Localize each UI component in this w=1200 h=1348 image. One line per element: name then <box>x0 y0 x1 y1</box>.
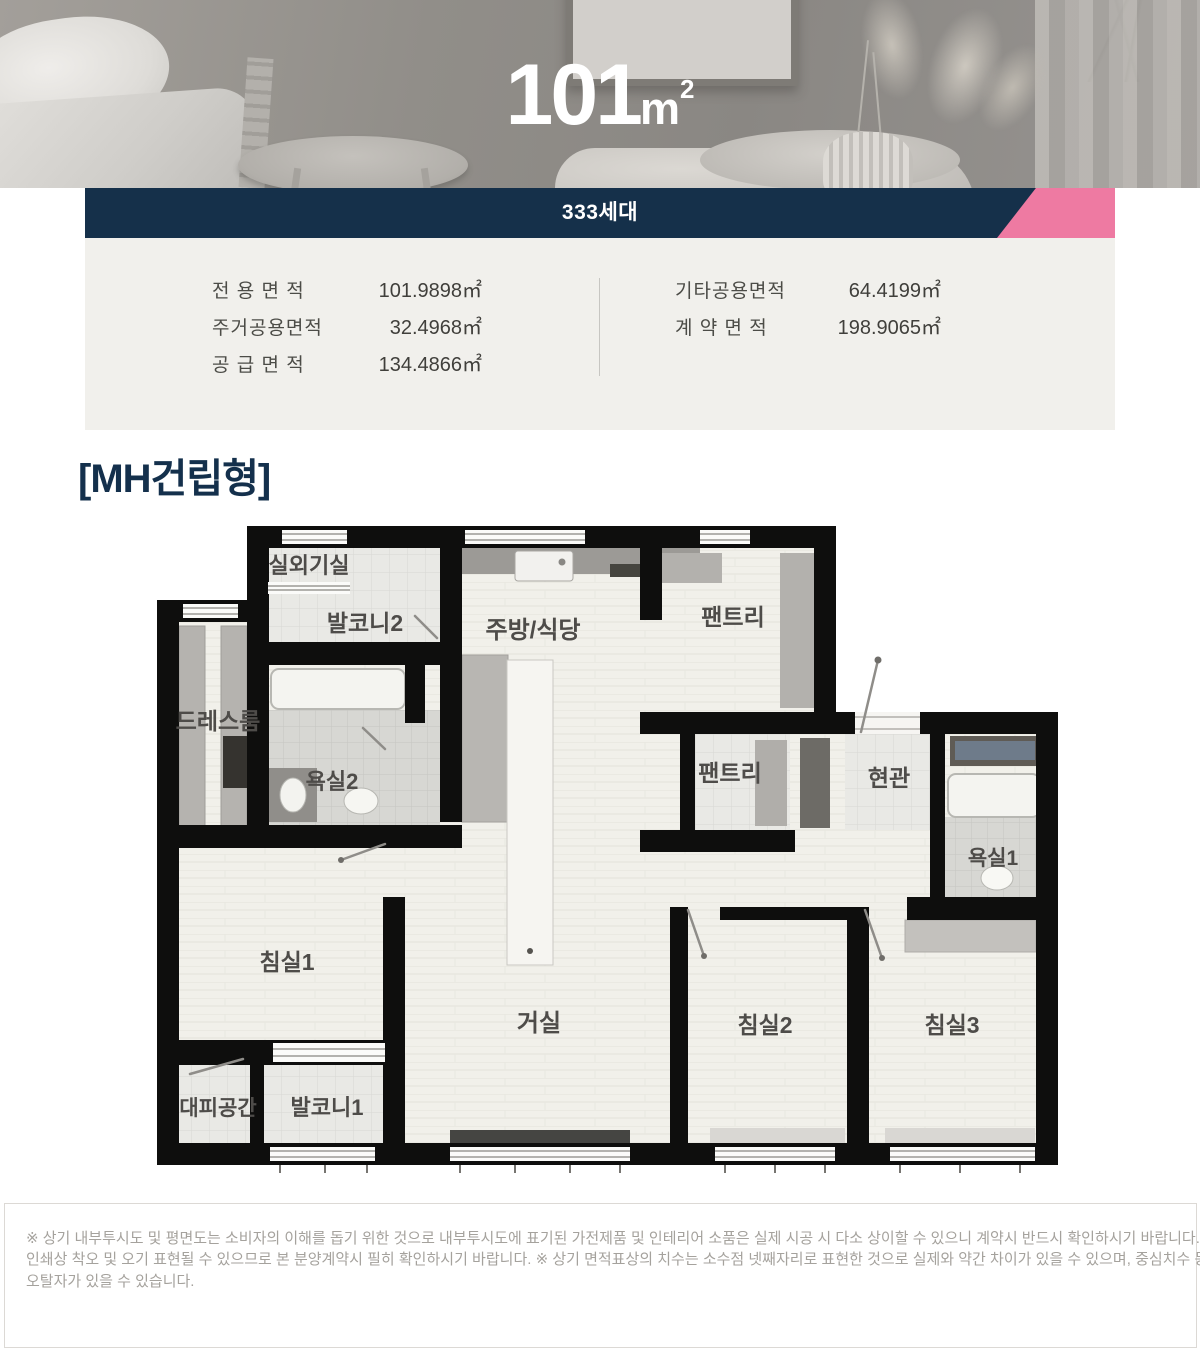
bathtub-icon <box>271 669 405 709</box>
room-label-evac: 대피공간 <box>179 1097 256 1120</box>
room-label-pantry2: 팬트리 <box>698 760 761 786</box>
spec-row: 기타공용면적 64.4199㎡ <box>675 274 941 311</box>
disclaimer-line: 인쇄상 착오 및 오기 표현될 수 있으므로 본 분양계약시 필히 확인하시기 … <box>26 1249 1176 1270</box>
room-label-kitchen: 주방/식당 <box>486 617 581 644</box>
window <box>700 530 750 544</box>
unit-size-title: 101m2 <box>0 52 1200 138</box>
spec-label: 주거공용면적 <box>212 313 323 340</box>
pantry1-shelf <box>780 553 814 708</box>
window <box>715 1147 835 1173</box>
kitchen-island-table <box>507 660 553 965</box>
builtin-wardrobe <box>462 655 508 822</box>
window <box>268 582 350 594</box>
pantry1-shelf <box>662 553 722 583</box>
window <box>183 604 238 618</box>
spec-column-right: 기타공용면적 64.4199㎡ 계 약 면 적 198.9065㎡ <box>675 274 941 348</box>
room-label-ac: 실외기실 <box>269 553 350 578</box>
room-label-dressroom: 드레스룸 <box>176 708 261 734</box>
window <box>890 1147 1035 1173</box>
room-label-balcony1: 발코니1 <box>291 1095 364 1120</box>
window <box>450 1147 630 1173</box>
spec-value: 101.9898㎡ <box>379 274 482 303</box>
window <box>465 530 585 544</box>
room-label-entry: 현관 <box>868 765 910 791</box>
kitchen-sink <box>515 551 573 581</box>
bed2-sill <box>710 1128 845 1143</box>
spec-row: 전 용 면 적 101.9898㎡ <box>212 274 482 311</box>
room-label-bed2: 침실2 <box>737 1012 792 1038</box>
spec-label: 계 약 면 적 <box>675 313 768 340</box>
round-stool <box>238 136 468 188</box>
ribbed-vase <box>823 132 913 188</box>
spec-value: 32.4968㎡ <box>390 311 482 340</box>
bathtub-icon <box>948 774 1040 817</box>
spec-value: 134.4866㎡ <box>379 348 482 377</box>
disclaimer-line: 오탈자가 있을 수 있습니다. <box>26 1271 1176 1292</box>
spec-column-left: 전 용 면 적 101.9898㎡ 주거공용면적 32.4968㎡ 공 급 면 … <box>212 274 482 385</box>
spec-label: 공 급 면 적 <box>212 350 305 377</box>
spec-value: 64.4199㎡ <box>849 274 941 303</box>
kitchen-faucet <box>559 559 566 566</box>
spec-label: 기타공용면적 <box>675 276 786 303</box>
room-label-balcony2: 발코니2 <box>327 610 403 636</box>
bed3-sill <box>885 1128 1035 1143</box>
shoe-cabinet <box>800 738 830 828</box>
area-spec-panel: 전 용 면 적 101.9898㎡ 주거공용면적 32.4968㎡ 공 급 면 … <box>85 238 1115 430</box>
island-detail <box>527 948 533 954</box>
room-label-bath1: 욕실1 <box>968 847 1019 870</box>
disclaimer-box: ※ 상기 내부투시도 및 평면도는 소비자의 이해를 돕기 위한 것으로 내부투… <box>4 1203 1197 1348</box>
living-sill <box>450 1130 630 1143</box>
disclaimer-line: ※ 상기 내부투시도 및 평면도는 소비자의 이해를 돕기 위한 것으로 내부투… <box>26 1228 1176 1249</box>
spec-label: 전 용 면 적 <box>212 276 305 303</box>
window <box>282 530 347 544</box>
unit-size-unit: m <box>640 83 680 134</box>
spec-row: 주거공용면적 32.4968㎡ <box>212 311 482 348</box>
sink-icon <box>280 778 306 812</box>
window <box>273 1043 385 1062</box>
room-label-bed1: 침실1 <box>259 949 314 975</box>
spec-value: 198.9065㎡ <box>838 311 941 340</box>
unit-size-superscript: 2 <box>680 74 694 104</box>
dresser-dark <box>223 736 247 788</box>
room-label-pantry1: 팬트리 <box>701 604 764 630</box>
spec-row: 계 약 면 적 198.9065㎡ <box>675 311 941 348</box>
hero-photo: 101m2 <box>0 0 1200 188</box>
bath1-cabinet-top <box>955 741 1035 760</box>
room-label-living: 거실 <box>517 1010 561 1037</box>
room-label-bed3: 침실3 <box>924 1012 979 1038</box>
spec-row: 공 급 면 적 134.4866㎡ <box>212 348 482 385</box>
bed3-builtin <box>905 920 1036 952</box>
spec-divider <box>599 278 600 376</box>
units-bar: 333세대 <box>85 188 1115 238</box>
plan-type-heading: [MH건립형] <box>78 446 270 504</box>
window <box>270 1147 375 1173</box>
units-count-label: 333세대 <box>85 188 1115 238</box>
unit-size-number: 101 <box>506 47 641 143</box>
room-label-bath2: 욕실2 <box>306 769 359 794</box>
floor-plan: 실외기실 발코니2 주방/식당 팬트리 드레스룸 욕실2 팬트리 현관 욕실1 … <box>155 518 1060 1178</box>
floor-plan-svg: 실외기실 발코니2 주방/식당 팬트리 드레스룸 욕실2 팬트리 현관 욕실1 … <box>155 518 1060 1178</box>
